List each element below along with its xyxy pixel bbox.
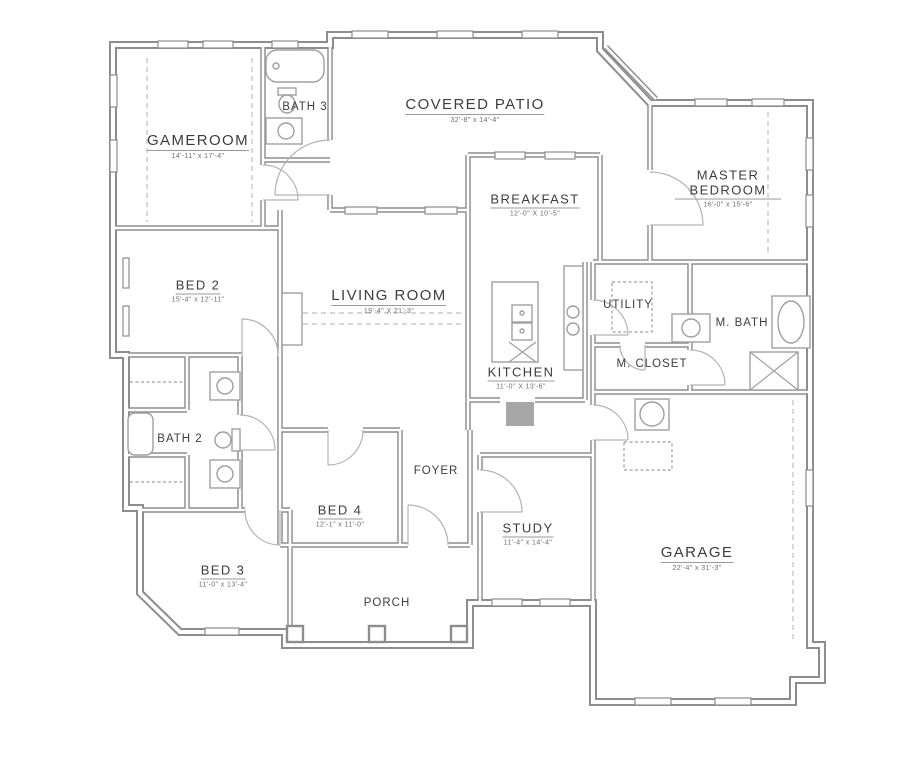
room-label-study: STUDY 11'-4" x 14'-4": [502, 520, 553, 547]
room-label-gameroom: GAMEROOM 14'-11" x 17'-4": [147, 132, 249, 160]
room-label-master-closet: M. CLOSET: [617, 354, 688, 374]
sink-icon: [217, 378, 233, 394]
room-name: BED 2: [176, 278, 221, 295]
sink-icon: [278, 123, 294, 139]
room-name: BED 3: [201, 563, 246, 580]
toilet-icon: [215, 432, 231, 448]
room-dims: 12'-1" x 11'-0": [316, 522, 365, 529]
water-heater-icon: [640, 402, 664, 426]
room-dims: 11'-4" x 14'-4": [502, 540, 553, 547]
room-label-bath2: BATH 2: [157, 429, 202, 449]
room-label-master-bedroom: MASTER BEDROOM 16'-0" x 15'-6": [675, 169, 781, 210]
tub-icon: [778, 301, 804, 343]
room-name: FOYER: [414, 465, 459, 477]
room-label-covered-patio: COVERED PATIO 32'-8" x 14'-4": [405, 96, 544, 124]
room-label-kitchen: KITCHEN 11'-0" X 13'-6": [488, 364, 555, 391]
built-in-column: [506, 402, 534, 426]
attic-access: [624, 442, 672, 470]
room-label-foyer: FOYER: [414, 461, 459, 481]
room-name: BREAKFAST: [490, 192, 579, 209]
room-dims: 32'-8" x 14'-4": [405, 117, 544, 124]
fireplace-icon: [282, 293, 302, 345]
room-label-living-room: LIVING ROOM 19'-4" X 21'-3": [331, 287, 446, 315]
room-label-porch: PORCH: [364, 593, 411, 613]
room-name: GAMEROOM: [147, 132, 249, 151]
sink-icon: [682, 319, 700, 337]
room-name: LIVING ROOM: [331, 287, 446, 306]
room-name: KITCHEN: [488, 365, 555, 382]
room-label-bed3: BED 3 11'-0" x 13'-4": [199, 562, 248, 589]
room-dims: 16'-0" x 15'-6": [675, 202, 781, 210]
room-label-garage: GARAGE 22'-4" x 31'-3": [661, 544, 734, 572]
porch-posts: [287, 626, 467, 642]
room-dims: 11'-0" X 13'-6": [488, 384, 555, 391]
room-dims: 22'-4" x 31'-3": [661, 565, 734, 572]
room-name: MASTER BEDROOM: [675, 169, 781, 200]
room-dims: 14'-11" x 17'-4": [147, 153, 249, 160]
room-name: UTILITY: [603, 299, 653, 311]
room-name: BATH 2: [157, 433, 202, 445]
room-label-bed2: BED 2 15'-4" x 12'-11": [172, 277, 225, 304]
room-label-breakfast: BREAKFAST 12'-0" X 10'-5": [490, 191, 579, 218]
room-name: M. CLOSET: [617, 358, 688, 370]
sink-icon: [217, 466, 233, 482]
room-name: M. BATH: [716, 317, 769, 329]
room-name: BATH 3: [282, 101, 327, 113]
room-dims: 19'-4" X 21'-3": [331, 308, 446, 315]
room-name: COVERED PATIO: [405, 96, 544, 115]
room-label-bed4: BED 4 12'-1" x 11'-0": [316, 502, 365, 529]
bathtub-icon: [128, 413, 153, 455]
room-label-master-bath: M. BATH: [716, 313, 769, 333]
room-dims: 15'-4" x 12'-11": [172, 297, 225, 304]
room-name: STUDY: [502, 521, 553, 538]
room-label-utility: UTILITY: [603, 295, 653, 315]
room-dims: 11'-0" x 13'-4": [199, 582, 248, 589]
floor-plan: GAMEROOM 14'-11" x 17'-4" BATH 3 COVERED…: [0, 0, 916, 768]
room-name: BED 4: [318, 503, 363, 520]
room-label-bath3: BATH 3: [282, 97, 327, 117]
room-name: GARAGE: [661, 544, 734, 563]
room-dims: 12'-0" X 10'-5": [490, 211, 579, 218]
room-name: PORCH: [364, 597, 411, 609]
